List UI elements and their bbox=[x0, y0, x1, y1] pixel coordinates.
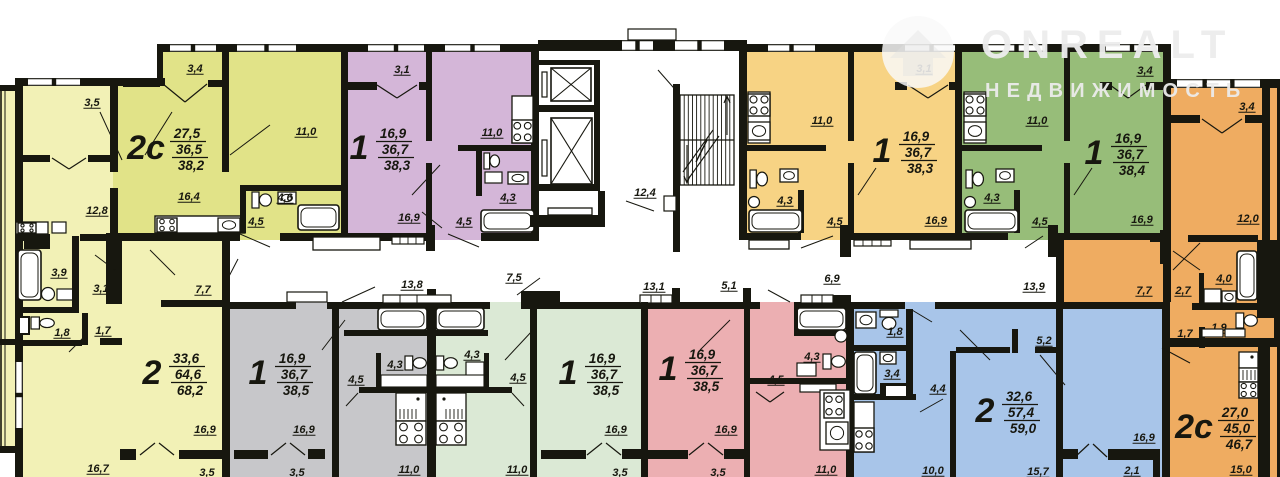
svg-text:59,0: 59,0 bbox=[1010, 421, 1037, 436]
svg-text:16,9: 16,9 bbox=[689, 347, 716, 362]
svg-text:4,3: 4,3 bbox=[499, 192, 515, 204]
svg-text:16,9: 16,9 bbox=[1131, 214, 1153, 226]
svg-text:64,6: 64,6 bbox=[175, 367, 202, 382]
svg-text:6,9: 6,9 bbox=[824, 273, 840, 285]
svg-text:3,5: 3,5 bbox=[199, 467, 215, 477]
svg-text:16,9: 16,9 bbox=[925, 215, 947, 227]
svg-text:36,7: 36,7 bbox=[905, 145, 933, 160]
svg-text:4,0: 4,0 bbox=[1215, 273, 1232, 285]
svg-text:3,4: 3,4 bbox=[884, 368, 899, 380]
svg-text:5,1: 5,1 bbox=[721, 280, 736, 292]
svg-text:13,9: 13,9 bbox=[1023, 281, 1045, 293]
svg-text:38,5: 38,5 bbox=[693, 379, 720, 394]
svg-text:10,0: 10,0 bbox=[922, 465, 944, 477]
svg-text:16,9: 16,9 bbox=[605, 424, 627, 436]
svg-text:1: 1 bbox=[249, 354, 268, 392]
svg-text:11,0: 11,0 bbox=[399, 464, 420, 476]
svg-text:45,0: 45,0 bbox=[1223, 421, 1251, 436]
svg-text:3,5: 3,5 bbox=[612, 467, 628, 477]
svg-text:16,9: 16,9 bbox=[1115, 131, 1142, 146]
svg-text:38,2: 38,2 bbox=[178, 158, 205, 173]
svg-text:5,2: 5,2 bbox=[1036, 335, 1051, 347]
svg-text:16,9: 16,9 bbox=[194, 424, 216, 436]
svg-text:4,5: 4,5 bbox=[509, 372, 526, 384]
svg-text:12,4: 12,4 bbox=[634, 187, 655, 199]
svg-text:16,4: 16,4 bbox=[178, 191, 199, 203]
svg-text:15,7: 15,7 bbox=[1027, 466, 1049, 477]
svg-text:16,9: 16,9 bbox=[903, 129, 930, 144]
svg-text:38,4: 38,4 bbox=[1119, 163, 1146, 178]
svg-text:11,0: 11,0 bbox=[816, 464, 837, 476]
svg-text:16,9: 16,9 bbox=[293, 424, 315, 436]
svg-text:1,7: 1,7 bbox=[95, 325, 111, 337]
svg-text:12,8: 12,8 bbox=[86, 205, 108, 217]
svg-text:38,3: 38,3 bbox=[384, 158, 411, 173]
svg-text:3,4: 3,4 bbox=[187, 63, 202, 75]
svg-text:36,5: 36,5 bbox=[176, 142, 203, 157]
svg-text:4,6: 4,6 bbox=[276, 192, 293, 204]
svg-text:7,5: 7,5 bbox=[506, 272, 522, 284]
svg-text:32,6: 32,6 bbox=[1006, 389, 1033, 404]
svg-text:11,0: 11,0 bbox=[296, 126, 317, 138]
svg-text:2: 2 bbox=[142, 354, 162, 392]
svg-text:ONREALT: ONREALT bbox=[981, 23, 1234, 67]
svg-text:38,5: 38,5 bbox=[593, 383, 620, 398]
svg-text:68,2: 68,2 bbox=[177, 383, 204, 398]
svg-text:1: 1 bbox=[659, 350, 678, 388]
svg-text:3,4: 3,4 bbox=[1239, 101, 1254, 113]
svg-text:16,9: 16,9 bbox=[380, 126, 407, 141]
svg-text:3,5: 3,5 bbox=[84, 97, 100, 109]
svg-text:12,0: 12,0 bbox=[1237, 213, 1259, 225]
svg-text:3,1: 3,1 bbox=[394, 64, 409, 76]
svg-text:2c: 2c bbox=[1174, 408, 1213, 446]
svg-text:2,1: 2,1 bbox=[1123, 465, 1139, 477]
svg-text:1: 1 bbox=[1085, 134, 1104, 172]
svg-text:1,8: 1,8 bbox=[887, 326, 903, 338]
svg-text:11,0: 11,0 bbox=[482, 127, 503, 139]
svg-text:3,5: 3,5 bbox=[710, 467, 726, 477]
svg-text:27,0: 27,0 bbox=[1221, 405, 1249, 420]
svg-text:2,7: 2,7 bbox=[1174, 285, 1191, 297]
svg-text:11,0: 11,0 bbox=[507, 464, 528, 476]
svg-text:11,0: 11,0 bbox=[1027, 115, 1048, 127]
svg-text:3,9: 3,9 bbox=[51, 267, 67, 279]
svg-text:11,0: 11,0 bbox=[812, 115, 833, 127]
svg-text:4,5: 4,5 bbox=[347, 374, 364, 386]
svg-text:4,3: 4,3 bbox=[983, 192, 999, 204]
svg-text:НЕДВИЖИМОСТЬ: НЕДВИЖИМОСТЬ bbox=[985, 80, 1247, 102]
svg-text:2c: 2c bbox=[126, 129, 165, 167]
svg-text:16,9: 16,9 bbox=[589, 351, 616, 366]
svg-text:38,3: 38,3 bbox=[907, 161, 934, 176]
svg-text:4,5: 4,5 bbox=[455, 216, 472, 228]
svg-text:16,9: 16,9 bbox=[1133, 432, 1155, 444]
svg-text:16,7: 16,7 bbox=[87, 463, 109, 475]
svg-text:36,7: 36,7 bbox=[281, 367, 309, 382]
svg-text:36,7: 36,7 bbox=[691, 363, 719, 378]
svg-text:1,8: 1,8 bbox=[54, 327, 70, 339]
svg-text:36,7: 36,7 bbox=[1117, 147, 1145, 162]
svg-text:4,5: 4,5 bbox=[247, 216, 264, 228]
svg-text:16,9: 16,9 bbox=[398, 212, 420, 224]
svg-text:4,3: 4,3 bbox=[803, 351, 819, 363]
svg-text:4,3: 4,3 bbox=[463, 349, 479, 361]
svg-text:4,4: 4,4 bbox=[929, 383, 945, 395]
svg-text:7,7: 7,7 bbox=[195, 284, 211, 296]
svg-text:46,7: 46,7 bbox=[1225, 437, 1254, 452]
svg-text:4,3: 4,3 bbox=[386, 359, 402, 371]
svg-text:16,9: 16,9 bbox=[279, 351, 306, 366]
svg-text:1: 1 bbox=[873, 132, 892, 170]
svg-text:7,7: 7,7 bbox=[1136, 285, 1152, 297]
svg-text:4,3: 4,3 bbox=[776, 195, 792, 207]
svg-text:4,5: 4,5 bbox=[1031, 216, 1048, 228]
svg-text:57,4: 57,4 bbox=[1008, 405, 1035, 420]
svg-text:3,5: 3,5 bbox=[289, 467, 305, 477]
svg-text:13,8: 13,8 bbox=[401, 279, 423, 291]
svg-text:1: 1 bbox=[559, 354, 578, 392]
svg-text:27,5: 27,5 bbox=[173, 126, 201, 141]
svg-text:1: 1 bbox=[350, 129, 369, 167]
svg-text:2: 2 bbox=[975, 392, 995, 430]
svg-text:33,6: 33,6 bbox=[173, 351, 200, 366]
svg-text:36,7: 36,7 bbox=[591, 367, 619, 382]
svg-text:16,9: 16,9 bbox=[715, 424, 737, 436]
svg-text:38,5: 38,5 bbox=[283, 383, 310, 398]
svg-text:36,7: 36,7 bbox=[382, 142, 410, 157]
svg-text:15,0: 15,0 bbox=[1230, 464, 1252, 476]
svg-text:13,1: 13,1 bbox=[643, 281, 664, 293]
